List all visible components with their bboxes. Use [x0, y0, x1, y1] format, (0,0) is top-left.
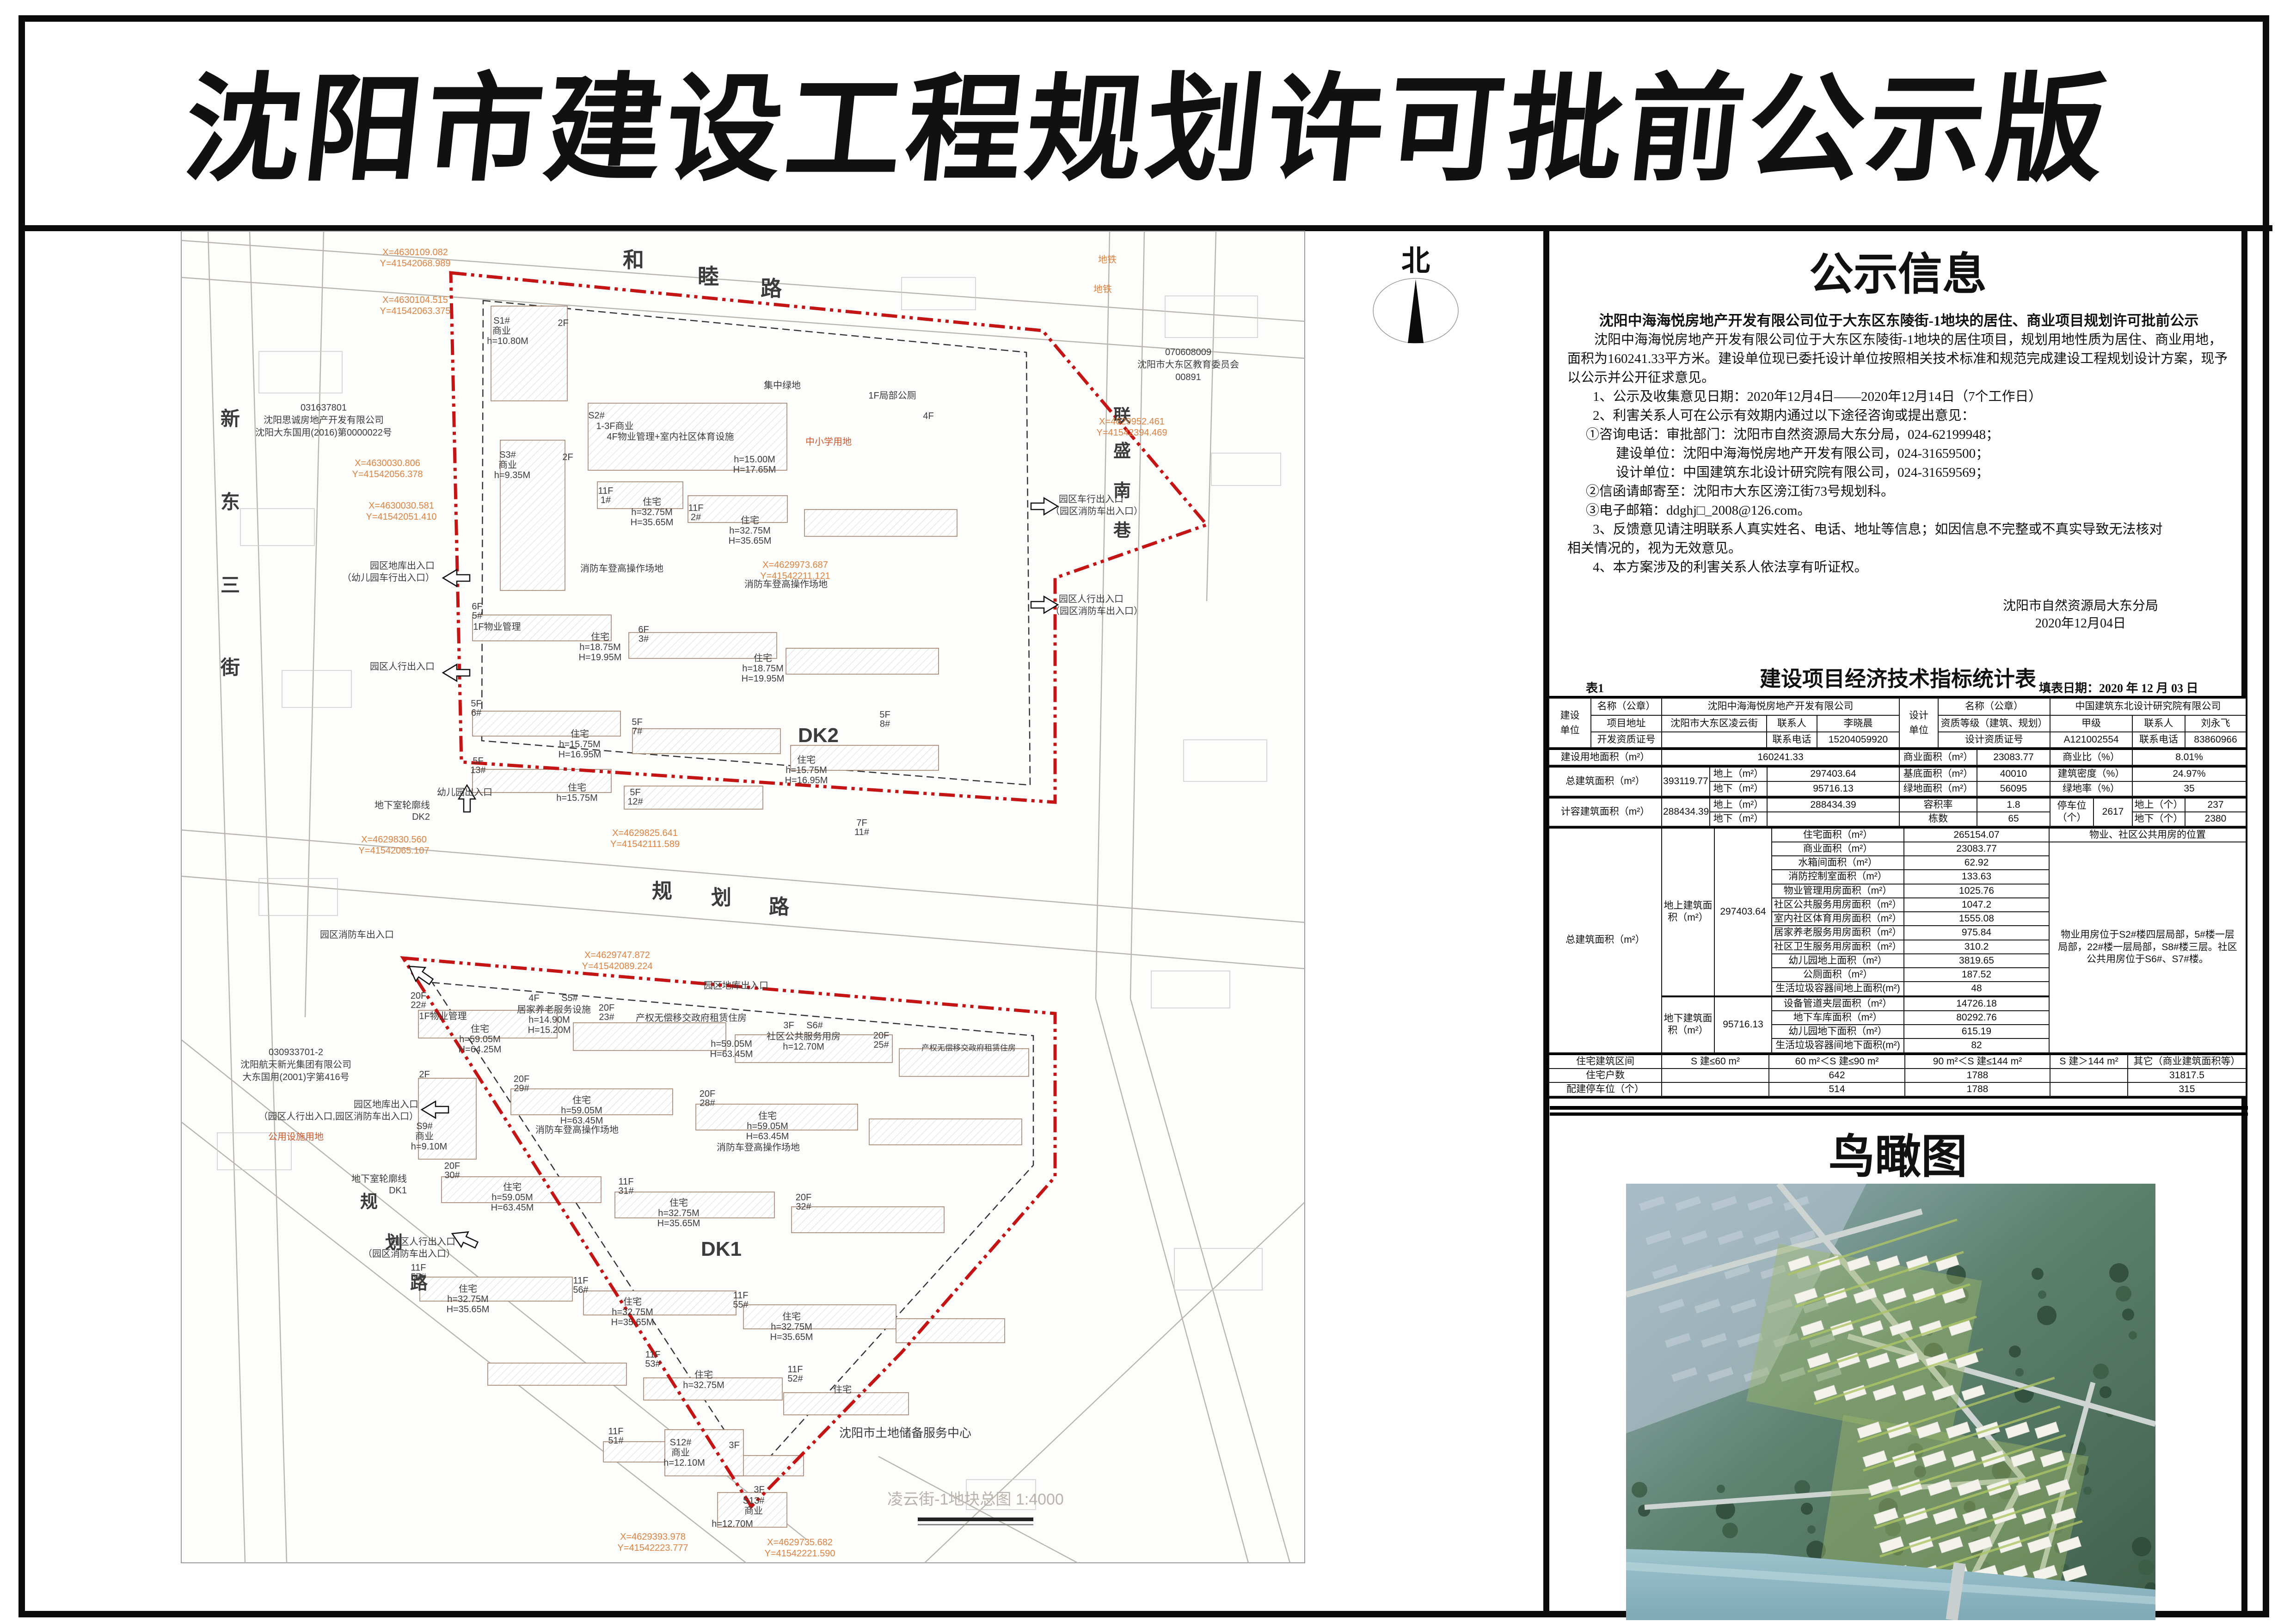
cell: 56095	[1977, 781, 2050, 796]
cell: 幼儿园地上面积（m²）	[1772, 954, 1904, 968]
cell: 8.01%	[2132, 749, 2246, 765]
svg-text:商业: 商业	[744, 1505, 763, 1516]
svg-text:H=15.20M: H=15.20M	[528, 1025, 571, 1035]
cell: 1047.2	[1904, 898, 2049, 912]
svg-text:56#: 56#	[573, 1285, 589, 1295]
notice-body: 沈阳中海海悦房地产开发有限公司位于大东区东陵街-1地块的居住项目，规划用地性质为…	[1567, 331, 2235, 577]
svg-text:住宅: 住宅	[591, 632, 609, 642]
svg-text:H=35.65M: H=35.65M	[729, 536, 772, 546]
svg-text:11F: 11F	[619, 1177, 634, 1187]
svg-text:h=15.75M: h=15.75M	[786, 765, 827, 775]
svg-text:盛: 盛	[1113, 442, 1131, 461]
cell: 公厕面积（m²）	[1772, 968, 1904, 982]
cell: 297403.64	[1767, 767, 1899, 781]
svg-text:h=15.00M: h=15.00M	[734, 455, 775, 465]
cell: 沈阳市大东区凌云街	[1662, 715, 1767, 732]
svg-text:h=32.75M: h=32.75M	[683, 1380, 724, 1390]
svg-text:住宅: 住宅	[623, 1296, 642, 1307]
svg-text:新: 新	[221, 408, 240, 430]
svg-text:H=35.65M: H=35.65M	[770, 1332, 813, 1342]
notice-sheet: 沈阳市建设工程规划许可批前公示版 和睦路新东三街联盛南巷规划路规划路X=4630…	[0, 0, 2296, 1622]
svg-text:5F: 5F	[630, 787, 640, 798]
cell	[1662, 1069, 1769, 1082]
svg-text:h=12.70M: h=12.70M	[712, 1519, 753, 1529]
svg-text:X=4629973.687: X=4629973.687	[762, 560, 828, 570]
svg-text:20F: 20F	[444, 1161, 460, 1171]
svg-text:20F: 20F	[873, 1031, 889, 1041]
svg-text:划: 划	[711, 886, 731, 909]
svg-text:H=19.95M: H=19.95M	[742, 674, 785, 684]
svg-text:S5#: S5#	[561, 993, 578, 1003]
cell: 393119.77	[1662, 767, 1710, 796]
table-fill-date: 填表日期：2020 年 12 月 03 日	[2039, 679, 2198, 696]
signature-org: 沈阳市自然资源局大东分局	[1997, 597, 2164, 615]
cell: 23083.77	[1977, 749, 2050, 765]
cell: 237	[2185, 798, 2246, 812]
cell: 2617	[2093, 798, 2132, 826]
svg-text:规: 规	[360, 1192, 378, 1212]
svg-text:Y=41542065.107: Y=41542065.107	[359, 846, 430, 856]
svg-text:住宅: 住宅	[503, 1182, 522, 1192]
notice-item: ②信函请邮寄至：沈阳市大东区滂江街73号规划科。	[1567, 482, 2235, 501]
svg-text:住宅: 住宅	[669, 1198, 688, 1208]
svg-text:S6#: S6#	[806, 1020, 823, 1031]
svg-text:住宅: 住宅	[741, 515, 759, 526]
svg-text:X=4629393.978: X=4629393.978	[620, 1532, 686, 1542]
notice-item: ①咨询电话：审批部门：沈阳市自然资源局大东分局，024-62199948；	[1567, 425, 2235, 444]
svg-text:集中绿地: 集中绿地	[764, 380, 801, 391]
svg-text:DK2: DK2	[798, 724, 839, 747]
cell: 容积率	[1899, 798, 1977, 812]
svg-text:23#: 23#	[599, 1012, 614, 1022]
cell: 288434.39	[1767, 798, 1899, 812]
cell: 1788	[1905, 1082, 2050, 1096]
svg-text:园区消防车出入口: 园区消防车出入口	[320, 929, 394, 940]
svg-text:H=63.45M: H=63.45M	[560, 1116, 603, 1126]
cell: 地下（个）	[2132, 812, 2185, 826]
svg-text:5#: 5#	[472, 611, 483, 621]
cell: 23083.77	[1904, 842, 2049, 856]
svg-text:3F: 3F	[783, 1020, 794, 1031]
svg-text:5F: 5F	[471, 699, 481, 709]
cell: S 建≤60 m²	[1662, 1054, 1769, 1069]
notice-item: 1、公示及收集意见日期：2020年12月4日——2020年12月14日（7个工作…	[1567, 387, 2235, 406]
cell: 187.52	[1904, 968, 2049, 982]
svg-text:商业: 商业	[415, 1131, 434, 1142]
svg-text:X=4630104.515: X=4630104.515	[382, 295, 448, 305]
cell: 95716.13	[1714, 996, 1772, 1053]
svg-text:社区公共服务用房: 社区公共服务用房	[767, 1031, 841, 1042]
notice-signature: 沈阳市自然资源局大东分局 2020年12月04日	[1997, 597, 2164, 633]
svg-text:住宅: 住宅	[754, 653, 772, 664]
svg-text:巷: 巷	[1113, 521, 1131, 541]
cell: 65	[1977, 812, 2050, 826]
svg-text:1#: 1#	[601, 495, 611, 505]
svg-text:H=63.45M: H=63.45M	[746, 1131, 789, 1142]
svg-text:22#: 22#	[411, 1000, 426, 1010]
table-total: 总建筑面积（m²） 393119.77 地上（m²） 297403.64 基底面…	[1548, 766, 2247, 797]
svg-text:57#: 57#	[411, 1272, 426, 1282]
svg-text:20F: 20F	[796, 1192, 811, 1203]
north-arrow: 北	[1373, 245, 1458, 343]
cell: 24.97%	[2132, 767, 2246, 781]
svg-text:h=15.75M: h=15.75M	[559, 739, 601, 750]
cell: 3819.65	[1904, 954, 2049, 968]
cell: 停车位（个）	[2050, 798, 2093, 826]
cell: 中国建筑东北设计研究院有限公司	[2050, 698, 2246, 715]
svg-text:X=4630109.082: X=4630109.082	[382, 247, 448, 258]
svg-text:31#: 31#	[618, 1186, 634, 1196]
svg-text:H=35.65M: H=35.65M	[631, 517, 674, 528]
svg-text:睦: 睦	[698, 264, 719, 289]
cell: 联系人	[1767, 715, 1817, 732]
cell: 14726.18	[1904, 996, 2049, 1011]
svg-text:H=63.45M: H=63.45M	[710, 1049, 753, 1059]
cell	[1767, 812, 1899, 826]
svg-text:h=14.90M: h=14.90M	[528, 1015, 570, 1025]
svg-text:1F物业管理: 1F物业管理	[473, 621, 521, 632]
svg-text:X=4630030.581: X=4630030.581	[368, 501, 434, 511]
svg-text:h=59.05M: h=59.05M	[459, 1034, 501, 1044]
notice-item-list: 1、公示及收集意见日期：2020年12月4日——2020年12月14日（7个工作…	[1567, 387, 2235, 577]
svg-text:Y=41542394.469: Y=41542394.469	[1097, 428, 1167, 438]
cell: 地上（m²）	[1710, 767, 1767, 781]
cell: 地下车库面积（m²）	[1772, 1011, 1904, 1025]
svg-text:沈阳航天新光集团有限公司: 沈阳航天新光集团有限公司	[240, 1059, 351, 1070]
cell: 居家养老服务用房面积（m²）	[1772, 926, 1904, 940]
svg-text:H=35.65M: H=35.65M	[447, 1304, 490, 1315]
svg-text:幼儿园出入口: 幼儿园出入口	[437, 787, 492, 798]
svg-text:h=9.35M: h=9.35M	[494, 470, 530, 480]
cell: 住宅建筑区间	[1549, 1054, 1662, 1069]
cell: 1025.76	[1904, 884, 2049, 898]
notice-subtitle: 沈阳中海海悦房地产开发有限公司位于大东区东陵街-1地块的居住、商业项目规划许可批…	[1557, 309, 2241, 330]
cell: 总建筑面积（m²）	[1549, 767, 1662, 796]
svg-text:h=18.75M: h=18.75M	[579, 642, 621, 652]
svg-text:20F: 20F	[700, 1089, 715, 1099]
cell: 绿地面积（m²）	[1899, 781, 1977, 796]
section-divider	[1550, 1106, 2248, 1116]
svg-text:沈阳市大东区教育委员会: 沈阳市大东区教育委员会	[1137, 359, 1239, 370]
cell: 48	[1904, 982, 2049, 996]
cell: 商业比（%）	[2050, 749, 2132, 765]
svg-text:住宅: 住宅	[568, 782, 586, 793]
svg-text:（园区消防车出入口）: （园区消防车出入口）	[363, 1248, 455, 1259]
svg-text:4F: 4F	[528, 993, 539, 1003]
svg-text:H=16.95M: H=16.95M	[559, 750, 602, 760]
cell: 住宅户数	[1549, 1069, 1662, 1082]
svg-text:Y=41542051.410: Y=41542051.410	[366, 512, 437, 522]
svg-text:h=32.75M: h=32.75M	[447, 1294, 489, 1304]
svg-text:6#: 6#	[471, 708, 482, 718]
svg-text:公用设施用地: 公用设施用地	[268, 1131, 324, 1142]
svg-text:住宅: 住宅	[572, 1095, 591, 1106]
svg-text:园区地库出入口: 园区地库出入口	[354, 1099, 418, 1110]
svg-text:住宅: 住宅	[571, 729, 589, 739]
cell: 刘永飞	[2185, 715, 2246, 732]
svg-text:X=4629830.560: X=4629830.560	[361, 835, 427, 845]
cell: 35	[2132, 781, 2246, 796]
cell	[1662, 732, 1767, 748]
cell: 物业、社区公共用房的位置	[2049, 828, 2246, 842]
svg-text:Y=41542111.589: Y=41542111.589	[610, 839, 680, 849]
notice-item: 4、本方案涉及的利害关系人依法享有听证权。	[1567, 558, 2235, 577]
cell: 315	[2128, 1082, 2246, 1096]
svg-text:11F: 11F	[788, 1364, 803, 1375]
svg-text:h=9.10M: h=9.10M	[411, 1142, 447, 1152]
svg-text:25#: 25#	[873, 1040, 889, 1050]
svg-text:中小学用地: 中小学用地	[805, 436, 852, 447]
svg-text:3#: 3#	[638, 634, 649, 644]
svg-text:h=32.75M: h=32.75M	[771, 1322, 812, 1332]
svg-text:h=15.75M: h=15.75M	[556, 793, 598, 803]
svg-text:3F: 3F	[754, 1485, 764, 1495]
svg-text:4F物业管理+室内社区体育设施: 4F物业管理+室内社区体育设施	[607, 431, 734, 442]
svg-text:3F: 3F	[729, 1440, 739, 1450]
cell: 297403.64	[1714, 828, 1772, 996]
svg-text:消防车登高操作场地: 消防车登高操作场地	[535, 1124, 619, 1135]
svg-text:园区人行出入口: 园区人行出入口	[391, 1236, 455, 1247]
svg-text:地铁: 地铁	[1093, 284, 1112, 295]
cell: 地下建筑面积（m²）	[1662, 996, 1714, 1053]
svg-text:Y=41542089.224: Y=41542089.224	[582, 961, 653, 971]
table-bottom: 住宅建筑区间 S 建≤60 m² 60 m²＜S 建≤90 m² 90 m²＜S…	[1548, 1053, 2247, 1097]
svg-text:产权无偿移交政府租赁住房: 产权无偿移交政府租赁住房	[921, 1044, 1016, 1052]
birdeye-title: 鸟瞰图	[1553, 1119, 2242, 1186]
cell: 生活垃圾容器间地上面积(m²)	[1772, 982, 1904, 996]
svg-text:20F: 20F	[514, 1074, 529, 1084]
cell: 642	[1769, 1069, 1905, 1082]
cell: 计容建筑面积（m²）	[1549, 798, 1662, 826]
svg-text:S3#: S3#	[499, 450, 516, 460]
svg-text:X=4630030.806: X=4630030.806	[355, 458, 420, 468]
cell: 社区卫生服务用房面积（m²）	[1772, 940, 1904, 954]
cell: 80292.76	[1904, 1011, 2049, 1025]
svg-text:住宅: 住宅	[797, 755, 816, 765]
indicator-table: 建设单位 名称（公章） 沈阳中海海悦房地产开发有限公司 设计单位 名称（公章） …	[1547, 696, 2247, 1099]
svg-text:031637801: 031637801	[301, 403, 347, 413]
svg-text:070608009: 070608009	[1165, 347, 1211, 357]
svg-text:5F: 5F	[473, 756, 483, 766]
cell: 甲级	[2050, 715, 2132, 732]
cell: 310.2	[1904, 940, 2049, 954]
svg-text:11F: 11F	[645, 1350, 661, 1360]
svg-text:商业: 商业	[492, 326, 511, 336]
cell: 沈阳中海海悦房地产开发有限公司	[1662, 698, 1899, 715]
svg-text:20F: 20F	[411, 991, 426, 1001]
notice-item: ③电子邮箱：ddghj□_2008@126.com。	[1567, 501, 2235, 520]
notice-item: 设计单位：中国建筑东北设计研究院有限公司，024-31659569；	[1567, 463, 2235, 482]
cell: 商业面积（m²）	[1772, 842, 1904, 856]
svg-text:（园区消防车出入口）: （园区消防车出入口）	[1050, 506, 1143, 516]
notice-paragraph: 沈阳中海海悦房地产开发有限公司位于大东区东陵街-1地块的居住项目，规划用地性质为…	[1567, 331, 2235, 387]
svg-text:住宅: 住宅	[471, 1024, 489, 1034]
cell: 2380	[2185, 812, 2246, 826]
svg-text:11F: 11F	[608, 1426, 624, 1437]
cell: 95716.13	[1767, 781, 1899, 796]
cell: 项目地址	[1591, 715, 1662, 732]
cell: 设计单位	[1899, 698, 1938, 748]
table-land: 建设用地面积（m²） 160241.33 商业面积（m²） 23083.77 商…	[1548, 748, 2247, 766]
cell: 开发资质证号	[1591, 732, 1662, 748]
svg-text:DK2: DK2	[412, 812, 430, 822]
cell: 265154.07	[1904, 828, 2049, 842]
cell: 1788	[1905, 1069, 2050, 1082]
svg-text:2#: 2#	[691, 512, 701, 522]
cell: 商业面积（m²）	[1899, 749, 1977, 765]
svg-text:51#: 51#	[608, 1436, 624, 1446]
svg-text:11F: 11F	[733, 1290, 749, 1301]
table-units: 建设单位 名称（公章） 沈阳中海海悦房地产开发有限公司 设计单位 名称（公章） …	[1548, 698, 2247, 748]
svg-text:13#: 13#	[470, 765, 486, 775]
svg-text:30#: 30#	[444, 1170, 460, 1180]
svg-text:32#: 32#	[796, 1202, 811, 1212]
notice-item: 3、反馈意见请注明联系人真实姓名、电话、地址等信息；如因信息不完整或不真实导致无…	[1567, 520, 2235, 539]
svg-text:消防车登高操作场地: 消防车登高操作场地	[717, 1142, 800, 1153]
cell: 地上（个）	[2132, 798, 2185, 812]
svg-text:路: 路	[761, 276, 782, 301]
cell	[1662, 1082, 1769, 1096]
svg-text:H=16.95M: H=16.95M	[785, 775, 828, 786]
birdeye-rendering	[1626, 1184, 2155, 1620]
cell: 82	[1904, 1038, 2049, 1052]
svg-text:52#: 52#	[787, 1374, 803, 1384]
svg-text:00891: 00891	[1175, 372, 1201, 382]
svg-text:S12#: S12#	[670, 1438, 692, 1448]
svg-text:12#: 12#	[627, 797, 643, 807]
cell: 生活垃圾容器间地下面积(m²)	[1772, 1038, 1904, 1052]
svg-text:h=59.05M: h=59.05M	[747, 1121, 788, 1131]
svg-text:2F: 2F	[562, 452, 573, 462]
svg-text:4F: 4F	[923, 411, 933, 421]
cell: 设备管道夹层面积（m²）	[1772, 996, 1904, 1011]
svg-text:Y=41542063.375: Y=41542063.375	[380, 306, 451, 316]
cell: 总建筑面积（m²）	[1549, 828, 1662, 1053]
svg-text:5F: 5F	[632, 717, 642, 727]
svg-text:S1#: S1#	[493, 316, 510, 326]
cell: A121002554	[2050, 732, 2132, 748]
svg-text:和: 和	[623, 248, 644, 272]
cell: 975.84	[1904, 926, 2049, 940]
notice-item: 建设单位：沈阳中海海悦房地产开发有限公司，024-31659500；	[1567, 444, 2235, 463]
cell: 名称（公章）	[1938, 698, 2050, 715]
svg-text:S9#: S9#	[416, 1121, 433, 1131]
svg-text:11#: 11#	[854, 827, 870, 837]
svg-text:（园区人行出入口,园区消防车出入口）: （园区人行出入口,园区消防车出入口）	[258, 1111, 418, 1122]
svg-text:沈阳市土地储备服务中心: 沈阳市土地储备服务中心	[839, 1426, 971, 1440]
svg-text:h=59.05M: h=59.05M	[711, 1039, 752, 1049]
cell: 615.19	[1904, 1025, 2049, 1038]
cell: 514	[1769, 1082, 1905, 1096]
svg-text:1F局部公厕: 1F局部公厕	[868, 390, 916, 401]
cell: 设计资质证号	[1938, 732, 2050, 748]
svg-text:11F: 11F	[688, 503, 704, 513]
cell: 31817.5	[2128, 1069, 2246, 1082]
cell: 地下（m²）	[1710, 781, 1767, 796]
cell: 李晓晨	[1817, 715, 1899, 732]
svg-text:商业: 商业	[671, 1447, 690, 1458]
svg-text:S2#: S2#	[588, 411, 605, 421]
svg-text:h=59.05M: h=59.05M	[491, 1192, 533, 1203]
cell: 室内社区体育用房面积（m²）	[1772, 912, 1904, 926]
cell: 15204059920	[1817, 732, 1899, 748]
svg-text:路: 路	[769, 896, 790, 918]
svg-text:53#: 53#	[645, 1359, 661, 1369]
svg-text:Y=41542068.989: Y=41542068.989	[380, 258, 451, 269]
svg-text:X=4629825.641: X=4629825.641	[612, 828, 678, 838]
svg-text:三: 三	[221, 574, 240, 596]
notice-title: 公示信息	[1553, 238, 2242, 302]
cell: 住宅面积（m²）	[1772, 828, 1904, 842]
svg-text:29#: 29#	[514, 1083, 529, 1094]
svg-text:园区人行出入口: 园区人行出入口	[1059, 594, 1123, 604]
svg-text:Y=41542223.777: Y=41542223.777	[618, 1543, 688, 1553]
svg-text:规: 规	[652, 880, 672, 903]
svg-text:h=12.70M: h=12.70M	[783, 1042, 824, 1052]
svg-text:消防车登高操作场地: 消防车登高操作场地	[744, 579, 828, 590]
svg-text:11F: 11F	[598, 486, 614, 496]
table-tag: 表1	[1586, 679, 1604, 696]
cell: 物业用房位于S2#楼四层局部，5#楼一层局部，22#楼一层局部，S8#楼三层。社…	[2049, 842, 2246, 1053]
svg-text:X=4629747.872: X=4629747.872	[584, 950, 650, 960]
cell: 地上（m²）	[1710, 798, 1767, 812]
svg-text:h=59.05M: h=59.05M	[561, 1106, 602, 1116]
svg-text:Y=41542221.590: Y=41542221.590	[765, 1548, 835, 1559]
svg-text:H=17.65M: H=17.65M	[733, 465, 776, 475]
svg-text:园区地库出入口: 园区地库出入口	[704, 980, 768, 991]
cell: 建设单位	[1549, 698, 1591, 748]
svg-text:6F: 6F	[472, 602, 482, 612]
svg-text:2F: 2F	[419, 1069, 430, 1080]
svg-text:H=64.25M: H=64.25M	[459, 1044, 502, 1055]
svg-text:地下室轮廓线: 地下室轮廓线	[351, 1173, 407, 1184]
svg-text:1-3F商业: 1-3F商业	[596, 421, 633, 431]
cell: 资质等级（建筑、规划）	[1938, 715, 2050, 732]
svg-text:住宅: 住宅	[694, 1370, 713, 1380]
svg-text:商业: 商业	[498, 460, 517, 470]
svg-text:H=35.65M: H=35.65M	[611, 1317, 654, 1327]
cell: 160241.33	[1662, 749, 1899, 765]
cell: 1555.08	[1904, 912, 2049, 926]
svg-text:X=4629735.682: X=4629735.682	[767, 1537, 833, 1548]
notice-item: 相关情况的，视为无效意见。	[1567, 539, 2235, 558]
svg-text:5F: 5F	[879, 710, 890, 720]
svg-text:7F: 7F	[856, 818, 867, 828]
table-jirong: 计容建筑面积（m²） 288434.39 地上（m²） 288434.39 容积…	[1548, 797, 2247, 827]
svg-text:S13#: S13#	[743, 1496, 765, 1506]
svg-text:X=4629952.461: X=4629952.461	[1099, 417, 1165, 427]
cell: 绿地率（%）	[2050, 781, 2132, 796]
svg-text:6F: 6F	[638, 625, 649, 635]
svg-text:11F: 11F	[411, 1263, 426, 1273]
svg-text:28#: 28#	[700, 1098, 715, 1108]
svg-text:2F: 2F	[558, 318, 568, 328]
svg-text:H=19.95M: H=19.95M	[579, 652, 622, 663]
cell: 消防控制室面积（m²）	[1772, 870, 1904, 884]
svg-text:11F: 11F	[573, 1276, 589, 1286]
cell: 名称（公章）	[1591, 698, 1662, 715]
svg-text:凌云街-1地块总图 1:4000: 凌云街-1地块总图 1:4000	[887, 1491, 1064, 1508]
svg-text:沈阳大东国用(2016)第0000022号: 沈阳大东国用(2016)第0000022号	[255, 427, 392, 438]
svg-text:大东国用(2001)字第416号: 大东国用(2001)字第416号	[242, 1072, 349, 1082]
svg-text:DK1: DK1	[701, 1238, 742, 1260]
cell: 基底面积（m²）	[1899, 767, 1977, 781]
cell: 其它（商业建筑面积等）	[2128, 1054, 2246, 1069]
cell: 联系电话	[2132, 732, 2185, 748]
notice-item: 2、利害关系人可在公示有效期内通过以下途径咨询或提出意见：	[1567, 406, 2235, 425]
svg-text:H=63.45M: H=63.45M	[491, 1203, 534, 1213]
cell: S 建＞144 m²	[2050, 1054, 2128, 1069]
